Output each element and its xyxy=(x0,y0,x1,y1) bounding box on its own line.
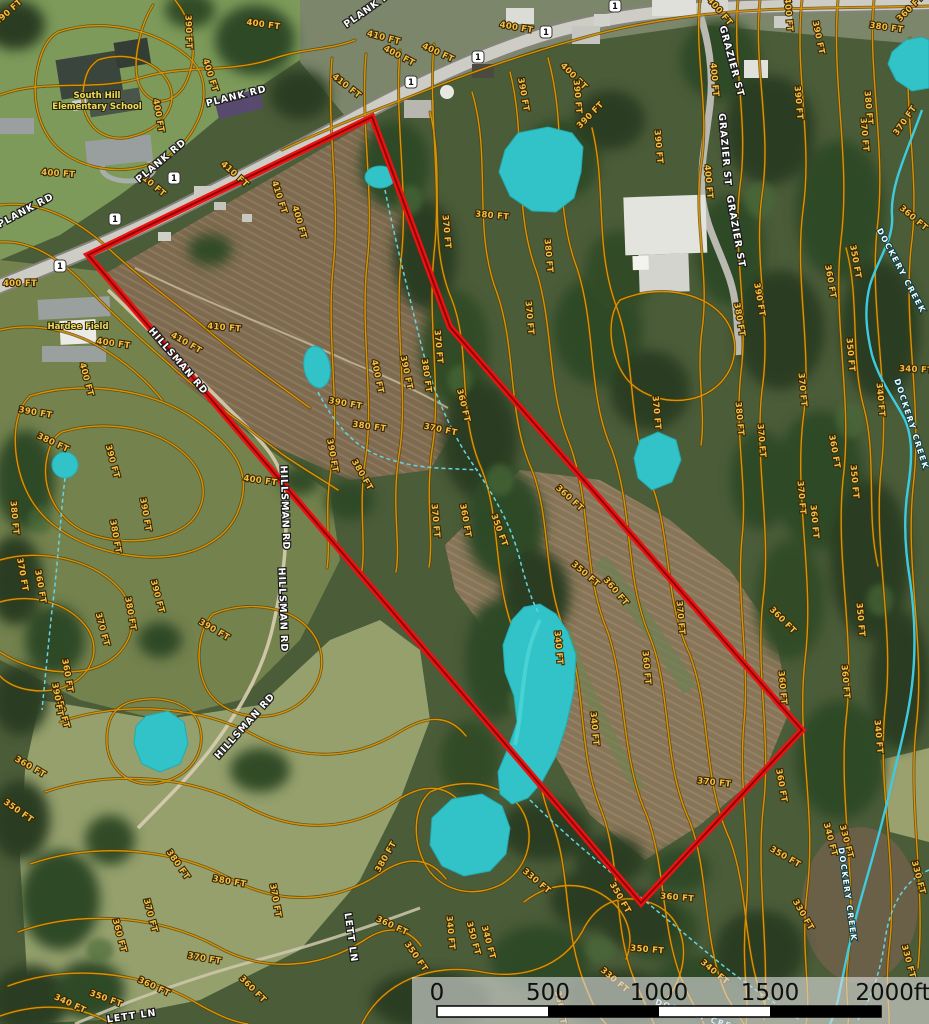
pond xyxy=(52,452,78,478)
contour-elevation-label: 390 FT xyxy=(182,15,193,49)
pond xyxy=(134,711,188,772)
route-1-shield: 1 xyxy=(540,26,552,38)
scale-tick: 1500 xyxy=(741,980,800,1006)
route-1-shield: 1 xyxy=(609,0,621,12)
contour-elevation-label: 400 FT xyxy=(3,279,37,289)
property-map: 390 FT400 FT390 FT400 FT400 FT400 FT410 … xyxy=(0,0,929,1024)
svg-text:1: 1 xyxy=(112,215,118,225)
route-1-shield: 1 xyxy=(405,76,417,88)
route-1-shield: 1 xyxy=(109,213,121,225)
svg-text:1: 1 xyxy=(475,53,481,63)
svg-text:1: 1 xyxy=(171,174,177,184)
svg-text:1: 1 xyxy=(408,78,414,88)
route-1-shield: 1 xyxy=(54,260,66,272)
scale-tick: 500 xyxy=(526,980,570,1006)
svg-text:1: 1 xyxy=(543,28,549,38)
scale-tick: 0 xyxy=(430,980,445,1006)
svg-text:1: 1 xyxy=(57,262,63,272)
scale-bar: 0 500 1000 1500 2000ft xyxy=(412,977,929,1024)
scale-tick: 2000ft xyxy=(855,980,929,1006)
scale-tick: 1000 xyxy=(630,980,689,1006)
silo xyxy=(440,85,454,99)
poi-label: Elementary School xyxy=(52,102,142,112)
route-1-shield: 1 xyxy=(472,51,484,63)
poi-label: Hardee Field xyxy=(47,322,108,332)
route-1-shield: 1 xyxy=(168,172,180,184)
map-canvas: 390 FT400 FT390 FT400 FT400 FT400 FT410 … xyxy=(0,0,929,1024)
svg-text:1: 1 xyxy=(612,2,618,12)
contour-elevation-label: 340 FT xyxy=(899,364,929,376)
poi-label: South Hill xyxy=(74,91,121,101)
